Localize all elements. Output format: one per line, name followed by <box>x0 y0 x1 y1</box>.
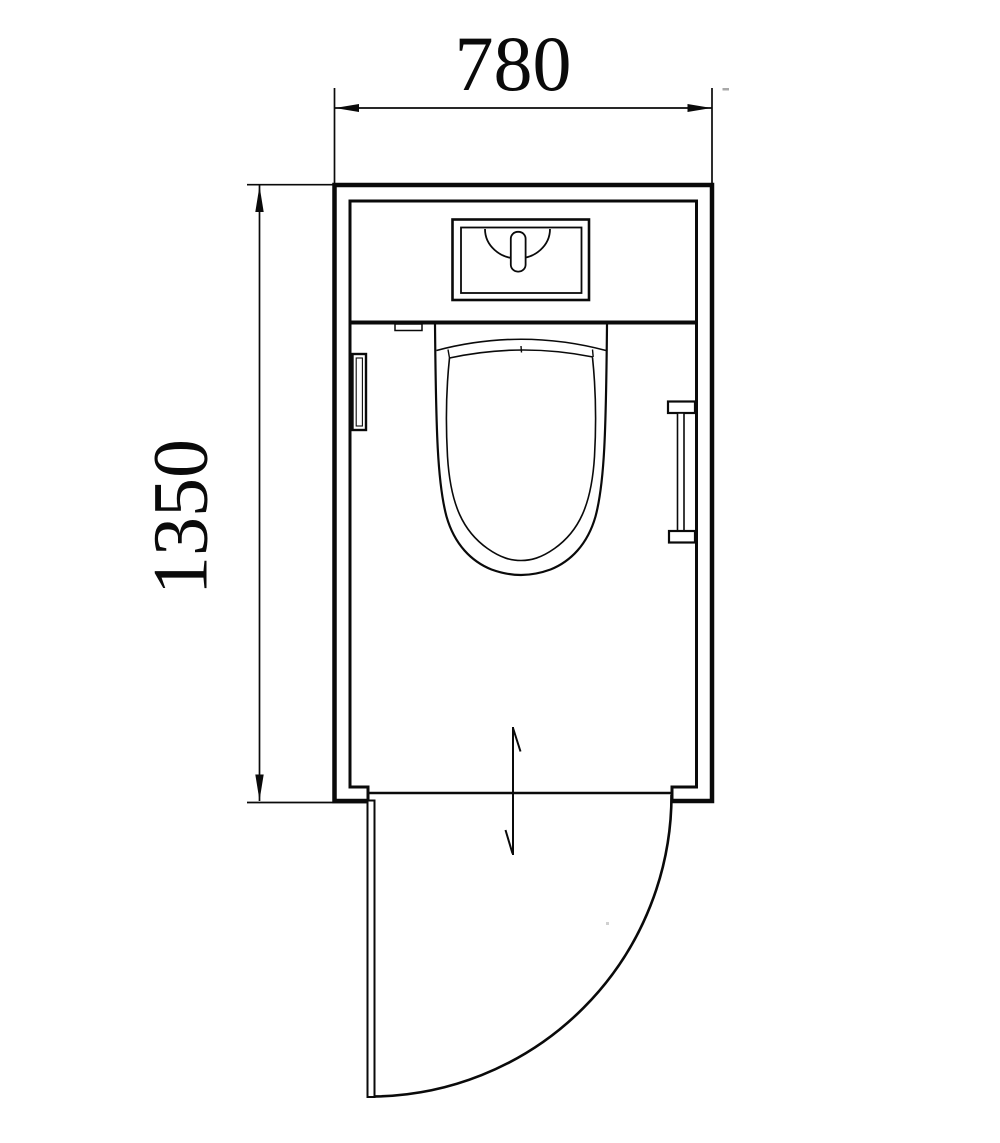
arrow-barb-top <box>513 728 521 752</box>
speck-near-arc <box>606 922 609 925</box>
grab-bar-rail <box>678 413 685 532</box>
door <box>368 795 672 1097</box>
grab-bar-top-bracket <box>668 402 695 414</box>
washbasin <box>453 220 590 301</box>
arrow-barb-bottom <box>506 830 513 854</box>
toilet-paper-holder <box>353 354 367 430</box>
arrowhead-down-icon <box>255 775 263 801</box>
paper-holder-outer <box>353 354 367 430</box>
toilet <box>435 325 607 576</box>
toilet-body-outline <box>435 325 607 576</box>
arrowhead-up-icon <box>255 186 263 212</box>
arrowhead-left-icon <box>335 104 359 112</box>
height-dimension-label: 1350 <box>137 439 224 595</box>
door-swing-arc <box>371 795 672 1097</box>
width-dimension-label: 780 <box>455 20 572 107</box>
lid-end-right <box>593 350 594 358</box>
width-dimension: 780 <box>335 20 713 183</box>
control-panel <box>395 324 422 331</box>
grab-bar-bottom-bracket <box>669 531 695 543</box>
door-leaf <box>368 801 375 1098</box>
arrowhead-right-icon <box>688 104 712 112</box>
speck-top-right <box>723 88 730 91</box>
floor-plan-canvas: 780 1350 <box>0 0 1000 1143</box>
lid-center-tick <box>521 346 522 353</box>
grab-bar <box>668 402 695 543</box>
floor-plan-page: 780 1350 <box>0 0 1000 1143</box>
faucet <box>511 232 526 272</box>
swing-direction-arrow <box>506 727 521 855</box>
